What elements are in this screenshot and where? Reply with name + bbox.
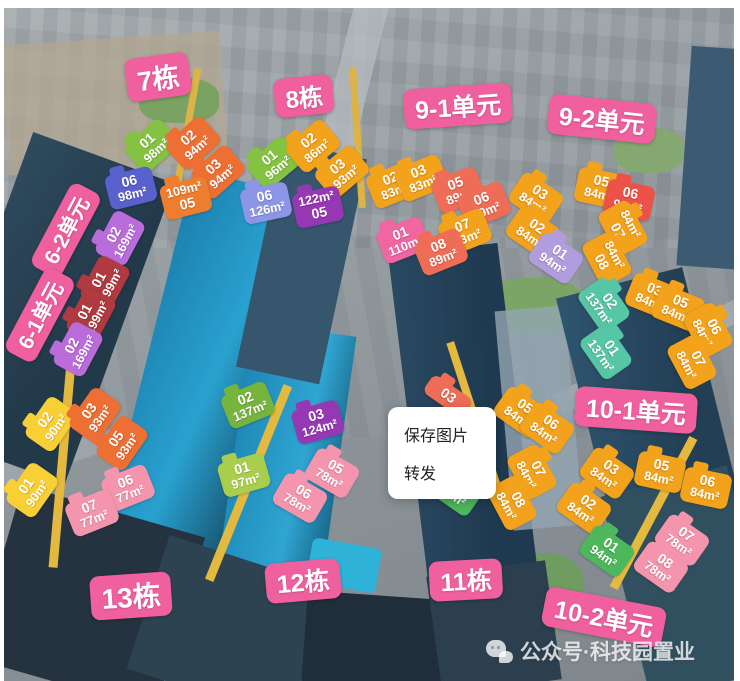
building-label-12: 12栋 [264,558,342,604]
building-label-9-1: 9-1单元 [403,82,514,129]
building-label-11: 11栋 [428,558,503,602]
menu-item-forward[interactable]: 转发 [388,453,496,491]
wechat-icon [486,640,513,663]
menu-item-save-image[interactable]: 保存图片 [388,415,496,453]
building-label-13: 13栋 [89,571,173,621]
context-menu: 保存图片 转发 [388,407,496,499]
building-label-7: 7栋 [123,51,192,102]
building-label-8: 8栋 [272,74,335,119]
watermark: 公众号·科技园置业 [486,636,695,666]
watermark-text: 公众号·科技园置业 [520,636,695,666]
building-label-10-1: 10-1单元 [574,386,699,434]
